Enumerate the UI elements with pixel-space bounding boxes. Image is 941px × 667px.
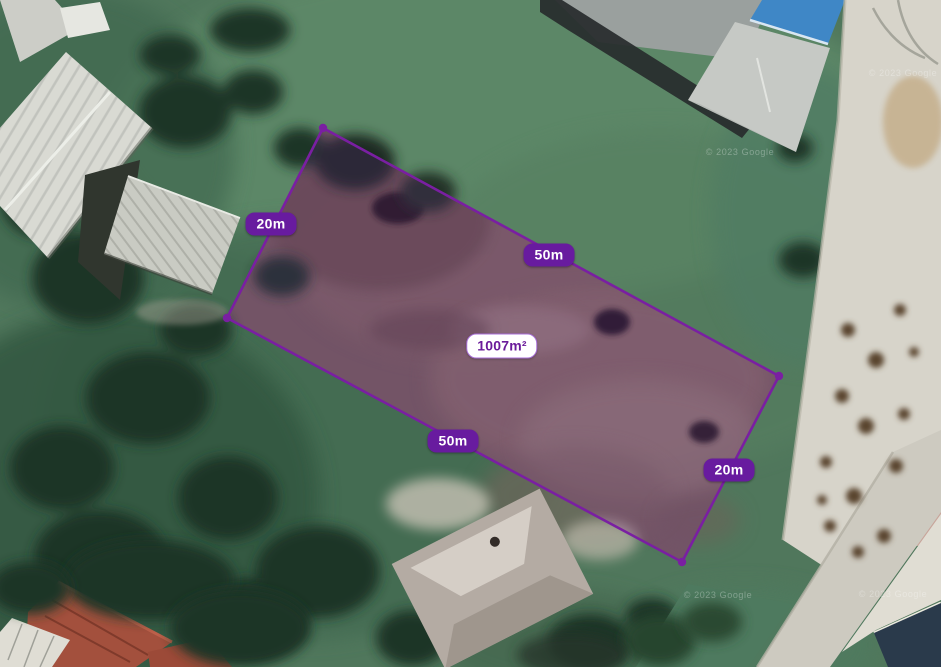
parcel-vertex-handle[interactable] [223, 314, 231, 322]
satellite-map-canvas[interactable]: 20m 50m 50m 20m 1007m² © 2023 Google © 2… [0, 0, 941, 667]
parcel-area-label: 1007m² [466, 334, 537, 359]
side-length-label-left: 20m [246, 213, 297, 236]
side-length-label-top: 50m [524, 244, 575, 267]
satellite-imagery [0, 0, 941, 667]
dirt-path [136, 299, 228, 325]
parcel-vertex-handle[interactable] [319, 124, 327, 132]
side-length-label-right: 20m [704, 459, 755, 482]
side-length-label-bottom: 50m [428, 430, 479, 453]
parcel-vertex-handle[interactable] [775, 372, 783, 380]
parcel-vertex-handle[interactable] [678, 558, 686, 566]
